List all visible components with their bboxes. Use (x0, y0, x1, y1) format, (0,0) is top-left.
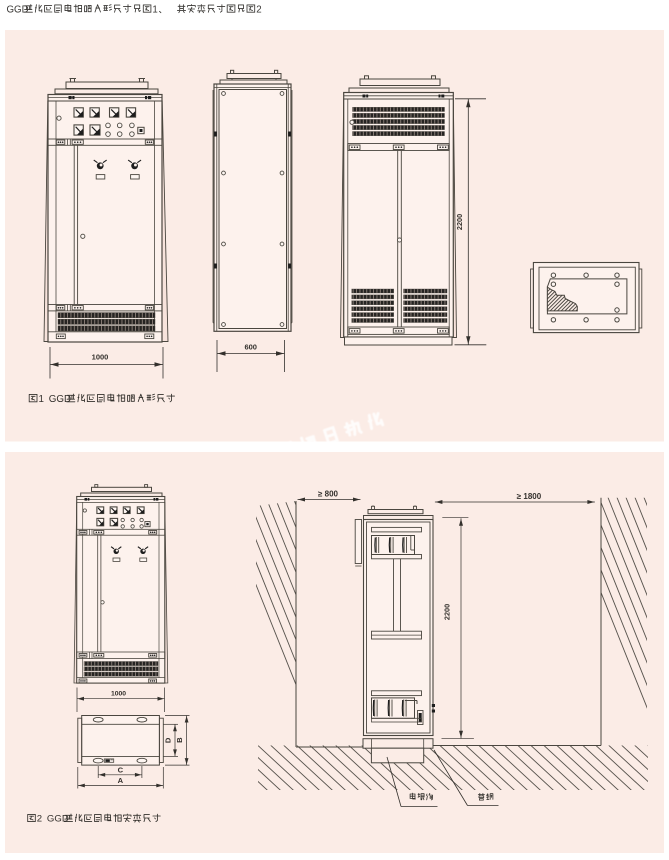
svg-text:2: 2 (256, 4, 261, 15)
svg-text:B: B (175, 737, 184, 743)
svg-text:1000: 1000 (111, 691, 126, 698)
svg-text:2200: 2200 (443, 604, 452, 620)
svg-text:≥ 800: ≥ 800 (318, 490, 339, 499)
svg-text:2200: 2200 (455, 214, 464, 230)
svg-text:1: 1 (152, 4, 157, 15)
svg-text:≥ 1800: ≥ 1800 (517, 492, 542, 501)
svg-text:2: 2 (37, 814, 42, 825)
svg-text:1000: 1000 (92, 353, 109, 362)
svg-text:1: 1 (39, 394, 44, 405)
svg-text:A: A (118, 776, 124, 785)
svg-text:C: C (118, 765, 124, 774)
svg-text:D: D (164, 737, 173, 743)
svg-text:600: 600 (244, 343, 257, 352)
